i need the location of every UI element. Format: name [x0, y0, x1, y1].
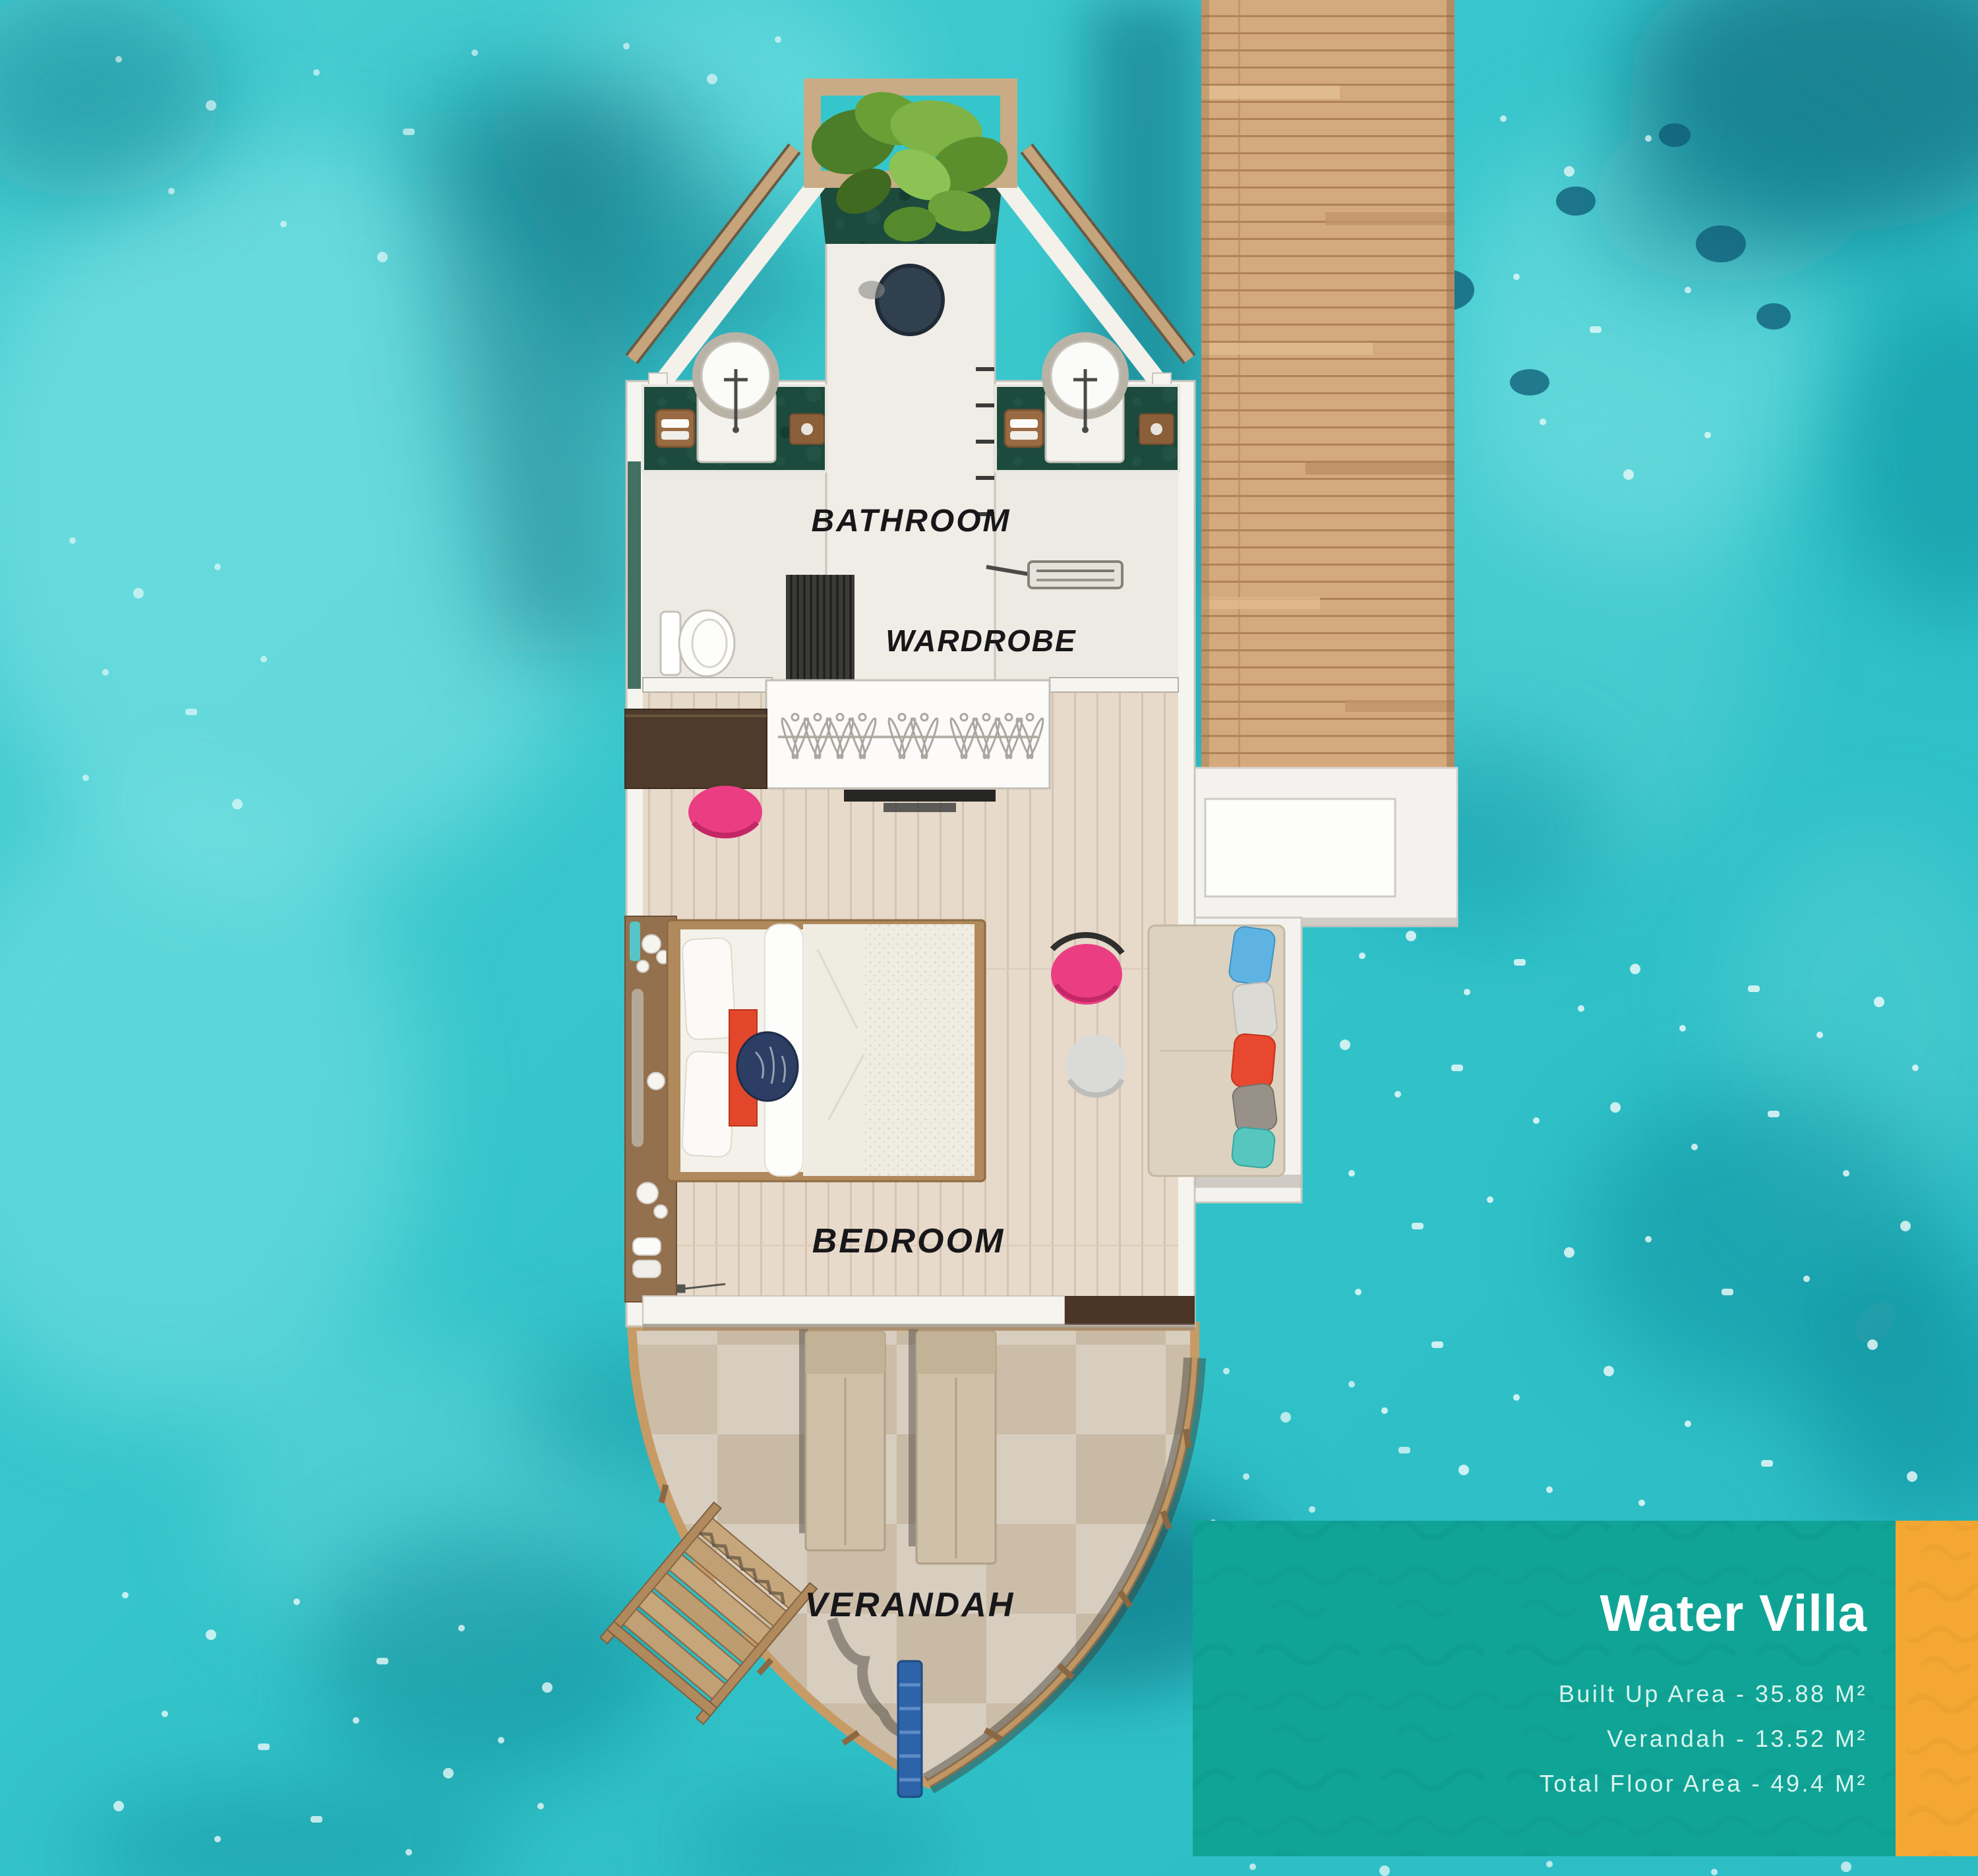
navy-pillow — [737, 1032, 798, 1101]
water-villa-floorplan-page: VERANDAH — [0, 0, 1978, 1876]
daybed-pillows — [1228, 925, 1278, 1169]
jetty-boardwalk — [1201, 0, 1454, 768]
sun-lounger — [909, 1329, 996, 1564]
pillow — [682, 1051, 736, 1158]
bathroom-label: BATHROOM — [811, 504, 1011, 539]
round-ottoman — [1065, 1035, 1126, 1096]
bed — [667, 920, 985, 1181]
floor-plan-render: VERANDAH — [0, 0, 1978, 1876]
wardrobe-label: WARDROBE — [885, 624, 1076, 658]
bedroom-label: BEDROOM — [812, 1222, 1005, 1260]
tv-console — [844, 790, 996, 802]
round-sink-right — [1042, 332, 1129, 462]
surfboard-decor — [630, 922, 640, 961]
vanity-desk — [625, 709, 767, 788]
sun-lounger — [799, 1329, 885, 1550]
slatted-mat — [786, 575, 854, 682]
info-card-detail-verandah: Verandah - 13.52 M² — [1607, 1725, 1867, 1752]
daybed-alcove — [1149, 918, 1302, 1202]
info-card: Water Villa Built Up Area - 35.88 M² Ver… — [1193, 1521, 1978, 1856]
vanity-stool-right — [1005, 410, 1043, 447]
toilet — [661, 610, 734, 676]
entry-platform — [1182, 768, 1457, 927]
rain-shower-head — [877, 266, 943, 334]
info-card-detail-total-floor-area: Total Floor Area - 49.4 M² — [1540, 1770, 1867, 1797]
vanity-stool-left — [656, 410, 694, 447]
info-card-title: Water Villa — [1600, 1584, 1868, 1642]
marble-half-wall — [628, 461, 641, 689]
vanity-stool-pink — [688, 786, 762, 838]
swim-ladder — [898, 1661, 922, 1797]
pillow — [682, 937, 736, 1040]
verandah-label: VERANDAH — [805, 1586, 1015, 1624]
info-card-detail-built-up-area: Built Up Area - 35.88 M² — [1559, 1680, 1867, 1707]
round-sink-left — [692, 332, 779, 462]
